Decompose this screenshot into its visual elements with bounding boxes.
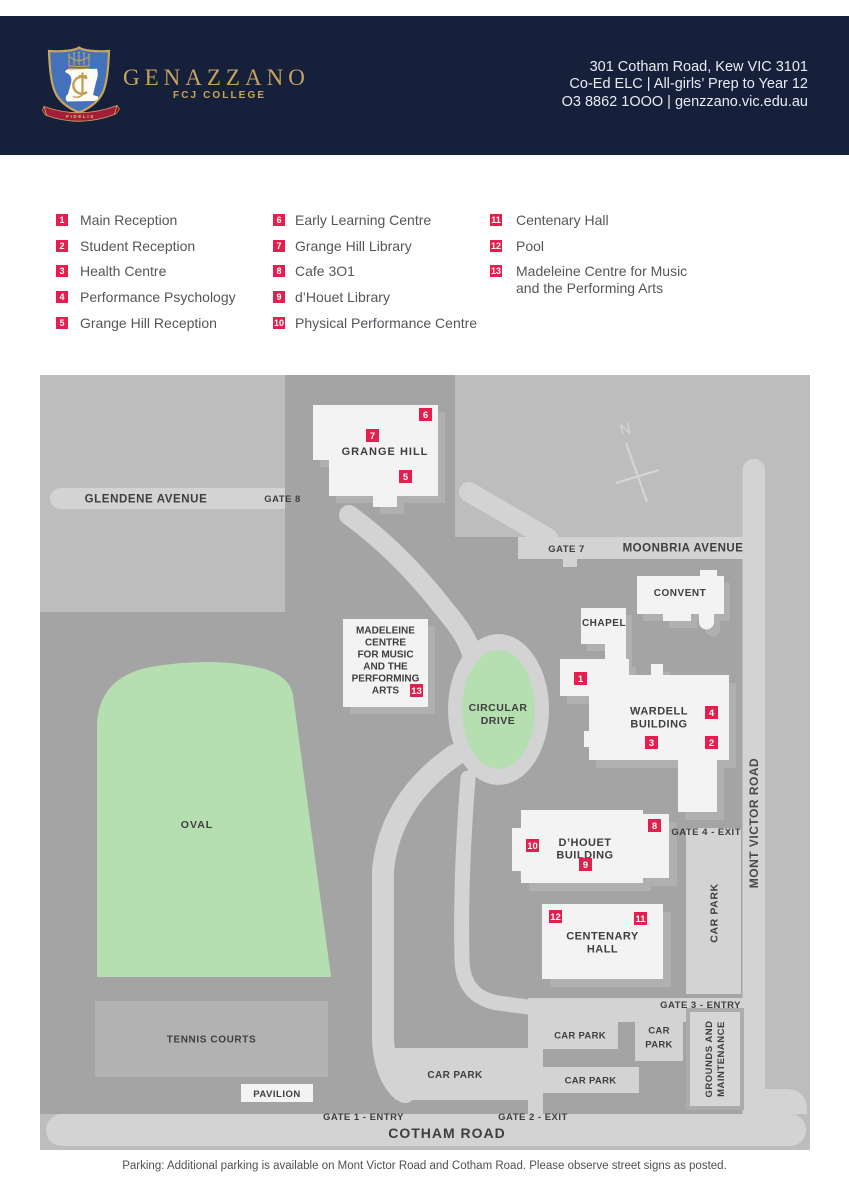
svg-text:CHAPEL: CHAPEL <box>582 618 626 629</box>
svg-text:7: 7 <box>370 431 375 442</box>
svg-text:BUILDING: BUILDING <box>630 719 687 731</box>
svg-text:GLENDENE AVENUE: GLENDENE AVENUE <box>85 494 208 506</box>
svg-text:CONVENT: CONVENT <box>654 588 706 599</box>
svg-text:GROUNDS AND: GROUNDS AND <box>704 1021 715 1098</box>
svg-text:PERFORMING: PERFORMING <box>352 674 420 685</box>
svg-text:CAR PARK: CAR PARK <box>565 1076 617 1087</box>
svg-text:6: 6 <box>423 410 428 421</box>
svg-text:CAR PARK: CAR PARK <box>709 883 721 942</box>
svg-text:COTHAM ROAD: COTHAM ROAD <box>388 1125 506 1141</box>
svg-text:8: 8 <box>652 821 657 832</box>
svg-text:GATE 1 - ENTRY: GATE 1 - ENTRY <box>323 1112 404 1123</box>
svg-text:ARTS: ARTS <box>372 686 400 697</box>
svg-text:CENTRE: CENTRE <box>365 638 406 649</box>
svg-text:TENNIS COURTS: TENNIS COURTS <box>167 1035 256 1046</box>
svg-text:GATE 2 - EXIT: GATE 2 - EXIT <box>498 1112 568 1123</box>
svg-text:GATE 8: GATE 8 <box>264 494 301 505</box>
svg-text:GATE 3 - ENTRY: GATE 3 - ENTRY <box>660 1000 741 1011</box>
svg-text:5: 5 <box>403 472 409 483</box>
svg-text:WARDELL: WARDELL <box>630 706 688 718</box>
svg-text:4: 4 <box>709 708 715 719</box>
svg-text:CENTENARY: CENTENARY <box>566 931 639 943</box>
svg-text:13: 13 <box>411 686 422 697</box>
svg-text:1: 1 <box>578 674 584 685</box>
svg-text:DRIVE: DRIVE <box>481 715 516 727</box>
svg-text:MAINTENANCE: MAINTENANCE <box>716 1021 727 1097</box>
svg-text:CAR PARK: CAR PARK <box>427 1070 483 1081</box>
svg-text:PAVILION: PAVILION <box>253 1089 300 1100</box>
svg-text:10: 10 <box>527 841 538 852</box>
svg-text:D’HOUET: D’HOUET <box>559 837 612 849</box>
svg-text:FIDELIS: FIDELIS <box>66 114 95 119</box>
svg-text:AND THE: AND THE <box>363 662 408 673</box>
svg-text:PARK: PARK <box>645 1040 672 1051</box>
svg-text:HALL: HALL <box>587 944 618 956</box>
svg-text:CIRCULAR: CIRCULAR <box>469 702 528 714</box>
svg-text:MOONBRIA AVENUE: MOONBRIA AVENUE <box>623 543 744 555</box>
svg-text:MONT VICTOR ROAD: MONT VICTOR ROAD <box>747 758 761 888</box>
svg-text:3: 3 <box>649 738 654 749</box>
svg-text:OVAL: OVAL <box>181 819 213 831</box>
svg-text:GATE 7: GATE 7 <box>548 544 585 555</box>
svg-text:12: 12 <box>550 912 561 923</box>
svg-text:CAR PARK: CAR PARK <box>554 1031 606 1042</box>
svg-text:MADELEINE: MADELEINE <box>356 626 415 637</box>
svg-text:CAR: CAR <box>648 1026 669 1037</box>
svg-text:GATE 4 - EXIT: GATE 4 - EXIT <box>671 827 741 838</box>
svg-text:2: 2 <box>709 738 714 749</box>
svg-text:GRANGE HILL: GRANGE HILL <box>342 446 429 458</box>
svg-text:FOR MUSIC: FOR MUSIC <box>357 650 413 661</box>
svg-text:9: 9 <box>583 860 588 871</box>
svg-text:11: 11 <box>635 914 646 925</box>
